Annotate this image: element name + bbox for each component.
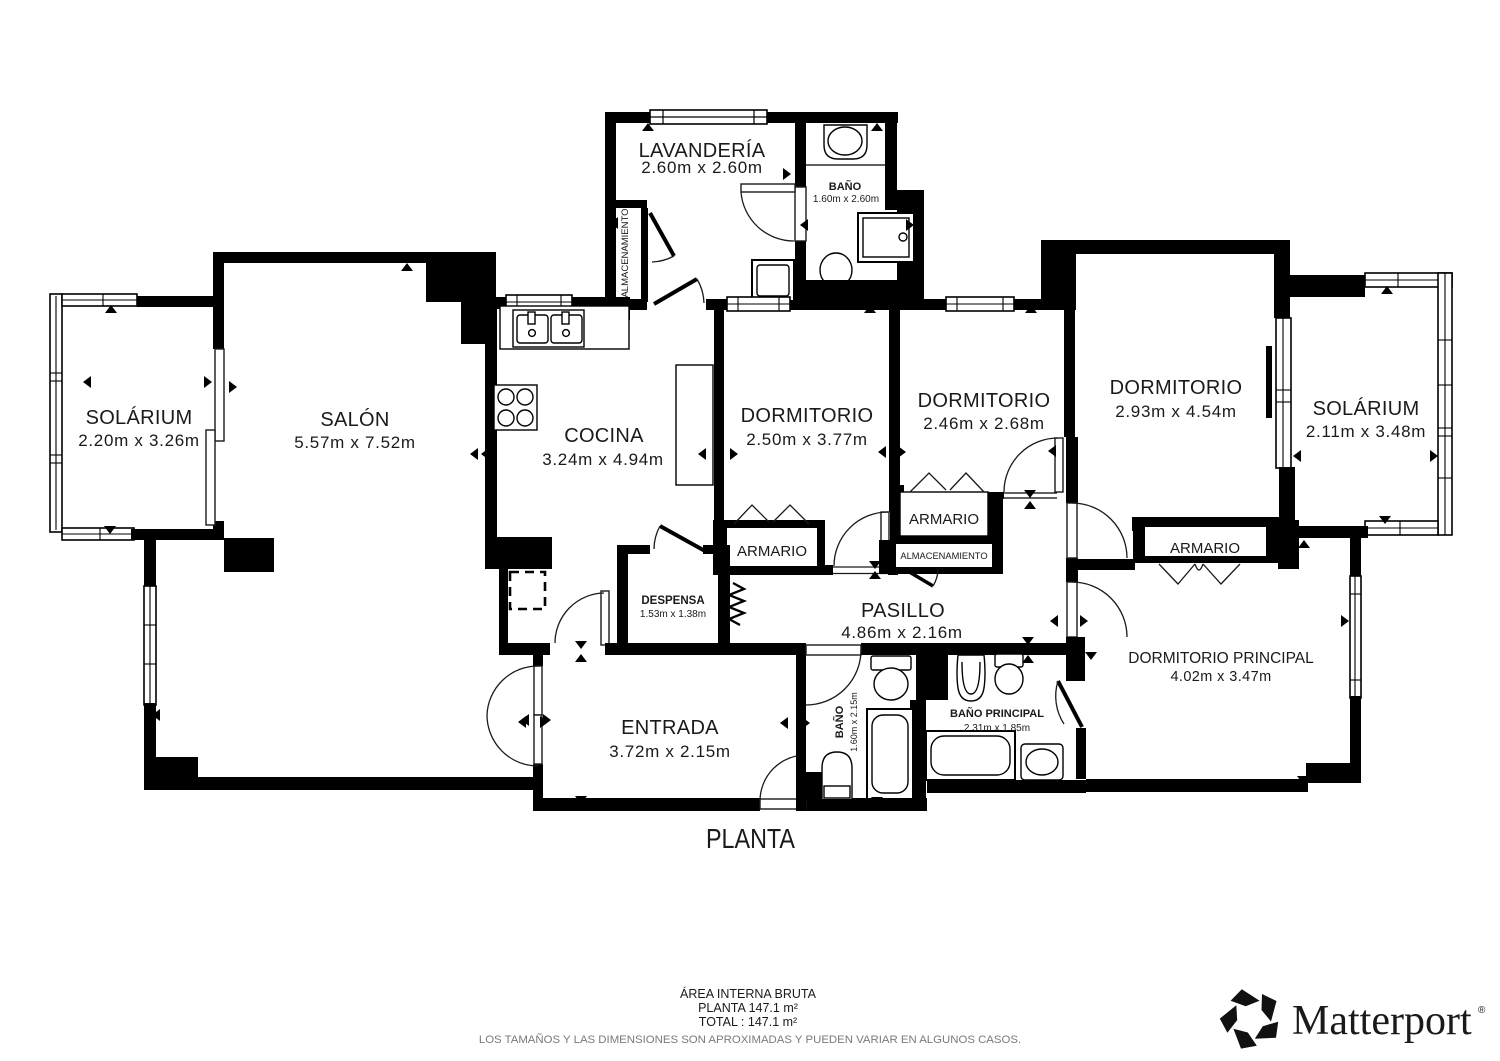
svg-text:SOLÁRIUM: SOLÁRIUM [1313, 397, 1420, 420]
svg-text:PASILLO: PASILLO [861, 600, 945, 622]
svg-text:BAÑO: BAÑO [833, 705, 846, 738]
svg-text:5.57m x 7.52m: 5.57m x 7.52m [294, 433, 416, 452]
svg-text:2.93m x 4.54m: 2.93m x 4.54m [1115, 402, 1237, 421]
svg-text:4.86m x 2.16m: 4.86m x 2.16m [841, 623, 963, 642]
svg-text:ARMARIO: ARMARIO [1170, 540, 1240, 557]
svg-text:BAÑO PRINCIPAL: BAÑO PRINCIPAL [950, 707, 1044, 720]
svg-text:ALMACENAMIENTO: ALMACENAMIENTO [620, 208, 631, 297]
svg-text:ARMARIO: ARMARIO [909, 511, 979, 528]
svg-text:1.60m x 2.60m: 1.60m x 2.60m [813, 194, 879, 205]
svg-text:2.50m x 3.77m: 2.50m x 3.77m [746, 430, 868, 449]
svg-text:2.60m x 2.60m: 2.60m x 2.60m [641, 158, 763, 177]
svg-text:SOLÁRIUM: SOLÁRIUM [86, 406, 193, 429]
svg-text:DORMITORIO: DORMITORIO [918, 390, 1051, 412]
svg-text:Matterport: Matterport [1292, 998, 1472, 1044]
svg-text:ÁREA INTERNA BRUTA: ÁREA INTERNA BRUTA [680, 986, 817, 1001]
svg-text:3.72m x 2.15m: 3.72m x 2.15m [609, 742, 731, 761]
svg-text:DORMITORIO: DORMITORIO [1110, 377, 1243, 399]
svg-text:2.31m x 1.85m: 2.31m x 1.85m [964, 723, 1030, 734]
svg-text:1.60m x 2.15m: 1.60m x 2.15m [849, 692, 859, 752]
svg-text:®: ® [1478, 1005, 1486, 1016]
svg-text:2.20m x 3.26m: 2.20m x 3.26m [78, 431, 200, 450]
svg-text:BAÑO: BAÑO [829, 180, 862, 193]
svg-text:2.11m x 3.48m: 2.11m x 3.48m [1306, 422, 1426, 441]
svg-text:DORMITORIO: DORMITORIO [741, 405, 874, 427]
svg-text:ARMARIO: ARMARIO [737, 543, 807, 560]
svg-text:SALÓN: SALÓN [320, 408, 389, 431]
svg-text:4.02m x 3.47m: 4.02m x 3.47m [1170, 669, 1271, 685]
svg-text:3.24m x 4.94m: 3.24m x 4.94m [542, 450, 664, 469]
svg-text:PLANTA: PLANTA [706, 823, 795, 854]
svg-text:COCINA: COCINA [564, 425, 644, 447]
svg-text:PLANTA 147.1 m²: PLANTA 147.1 m² [698, 1001, 798, 1015]
svg-text:1.53m x 1.38m: 1.53m x 1.38m [640, 609, 706, 620]
svg-text:2.46m x 2.68m: 2.46m x 2.68m [923, 414, 1045, 433]
svg-text:DESPENSA: DESPENSA [641, 595, 704, 607]
svg-text:ENTRADA: ENTRADA [621, 717, 719, 739]
svg-text:ALMACENAMIENTO: ALMACENAMIENTO [900, 551, 987, 561]
svg-text:DORMITORIO PRINCIPAL: DORMITORIO PRINCIPAL [1128, 650, 1314, 667]
svg-text:LOS TAMAÑOS Y LAS DIMENSIONES: LOS TAMAÑOS Y LAS DIMENSIONES SON APROXI… [479, 1033, 1021, 1046]
svg-text:TOTAL : 147.1 m²: TOTAL : 147.1 m² [699, 1015, 797, 1029]
